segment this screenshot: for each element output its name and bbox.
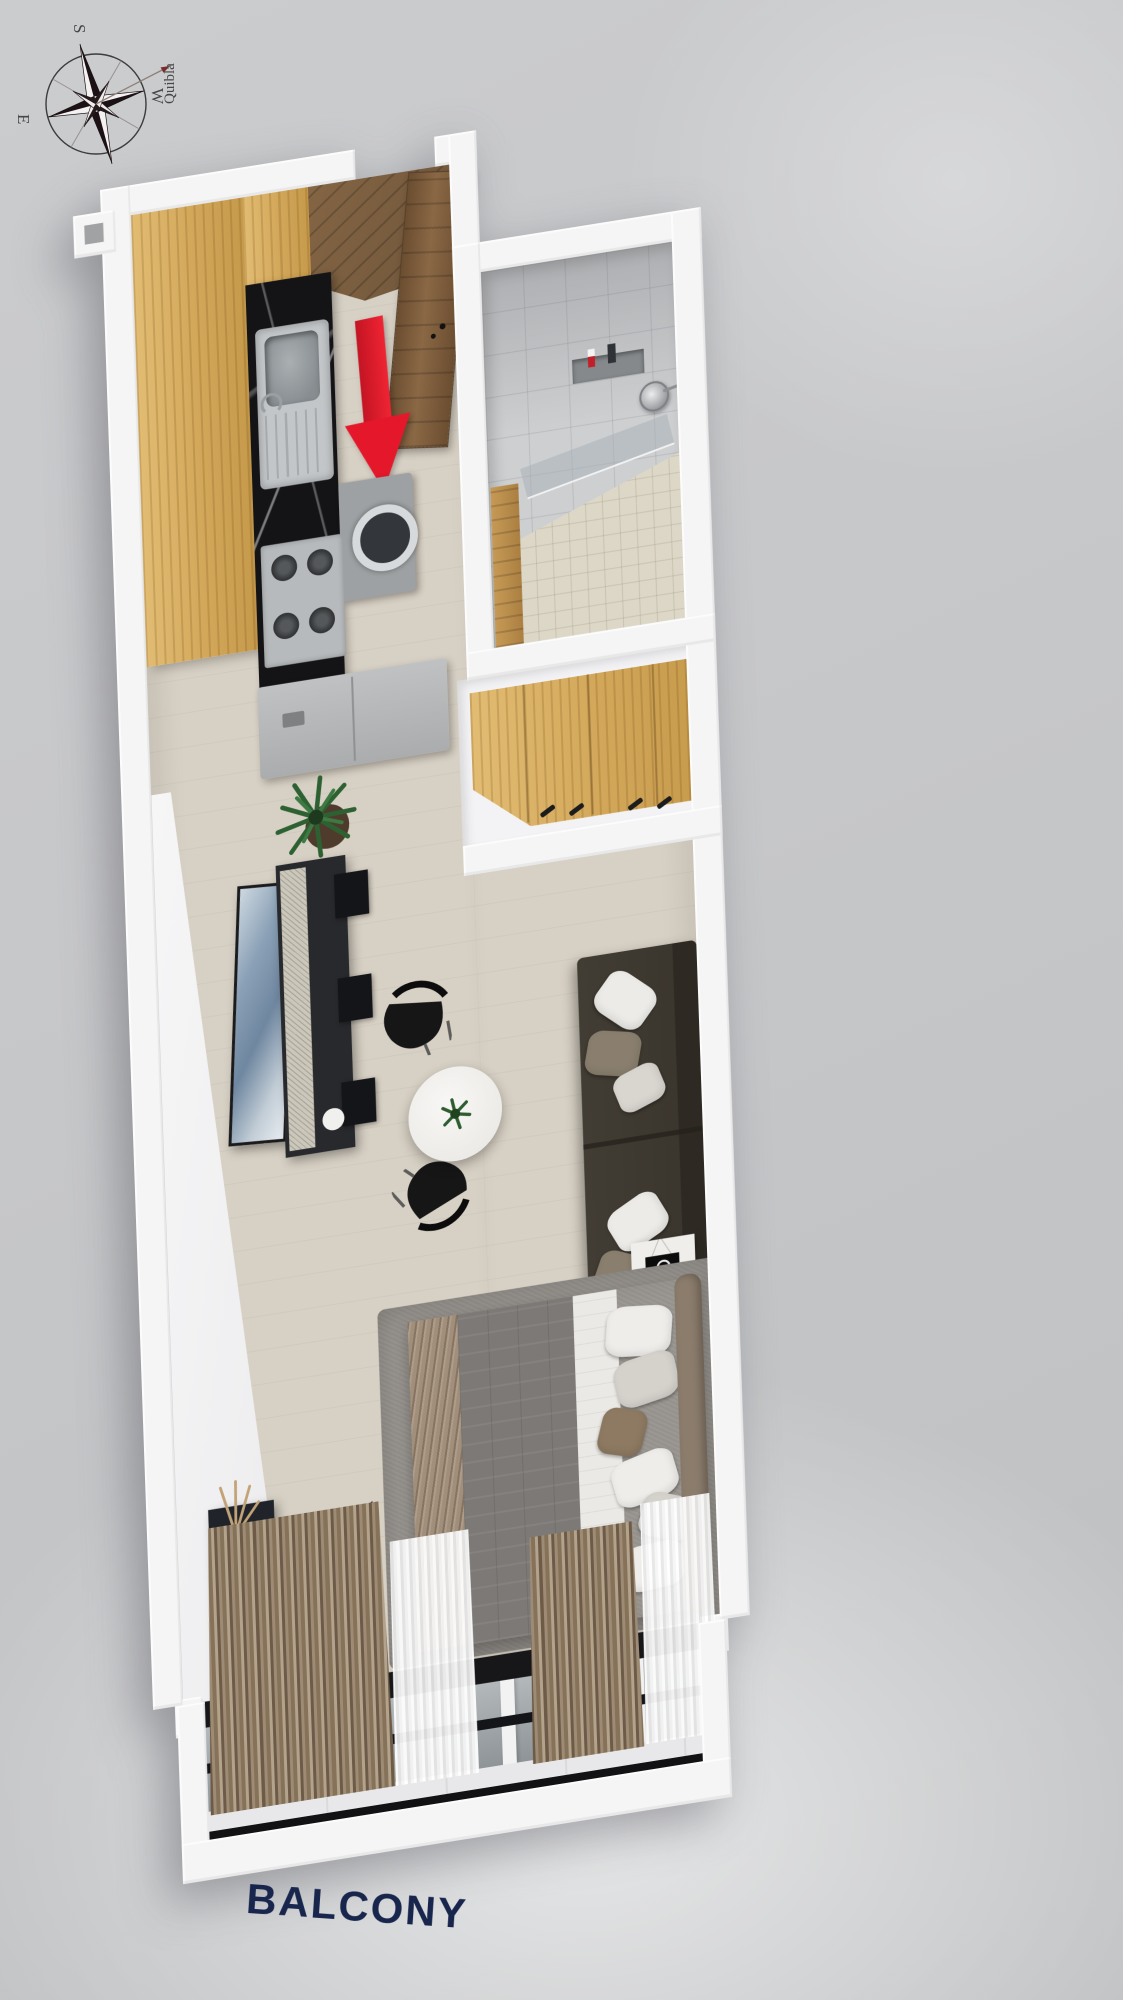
bathroom-vanity [490,483,523,647]
floor-plan-render: E S W Quibla [0,0,1123,2000]
washer-door [351,500,419,576]
console-speaker-hole [322,1106,345,1131]
kitchen-sink [255,319,334,491]
curtain-brown [525,1520,644,1764]
dining-chair [374,977,459,1055]
console-speaker-box [341,1077,376,1126]
fridge-seam [351,677,356,761]
wall-notch-hole [84,223,104,245]
door-handle-dot [431,334,436,339]
console-speaker-box [338,973,373,1022]
compass-label-qibla: Quibla [162,63,178,104]
potted-plant [269,764,364,871]
console-stone-shelf [280,867,316,1151]
fridge-vent [282,711,304,728]
kitchen-cabinets [131,198,258,668]
table-centerpiece-plant [437,1093,474,1135]
wall-notch-block [73,210,116,259]
door-handle [439,323,445,329]
washing-machine [338,472,416,602]
console-speaker-box [334,869,369,918]
compass-label-south: S [70,24,89,33]
sofa-pillow [588,965,662,1035]
curtain-brown [201,1500,396,1815]
curtain-sheer [387,1529,479,1786]
burner [307,547,334,577]
kitchen-upper-cabinet [242,187,311,289]
shampoo-bottle [588,349,596,368]
stove-cooktop [260,534,346,669]
tv-console [276,855,356,1158]
bathroom [481,242,685,650]
arrow-shaft [355,315,392,426]
burner [309,605,336,635]
bathroom-wall-shade [481,242,678,443]
sink-drainboard [265,407,325,480]
compass-rose-icon: E S W Quibla [4,4,216,186]
apartment-plan [100,95,756,1890]
burner [273,611,300,641]
shampoo-bottle [607,343,616,363]
burner [271,553,298,583]
compass-label-east: E [14,114,33,124]
